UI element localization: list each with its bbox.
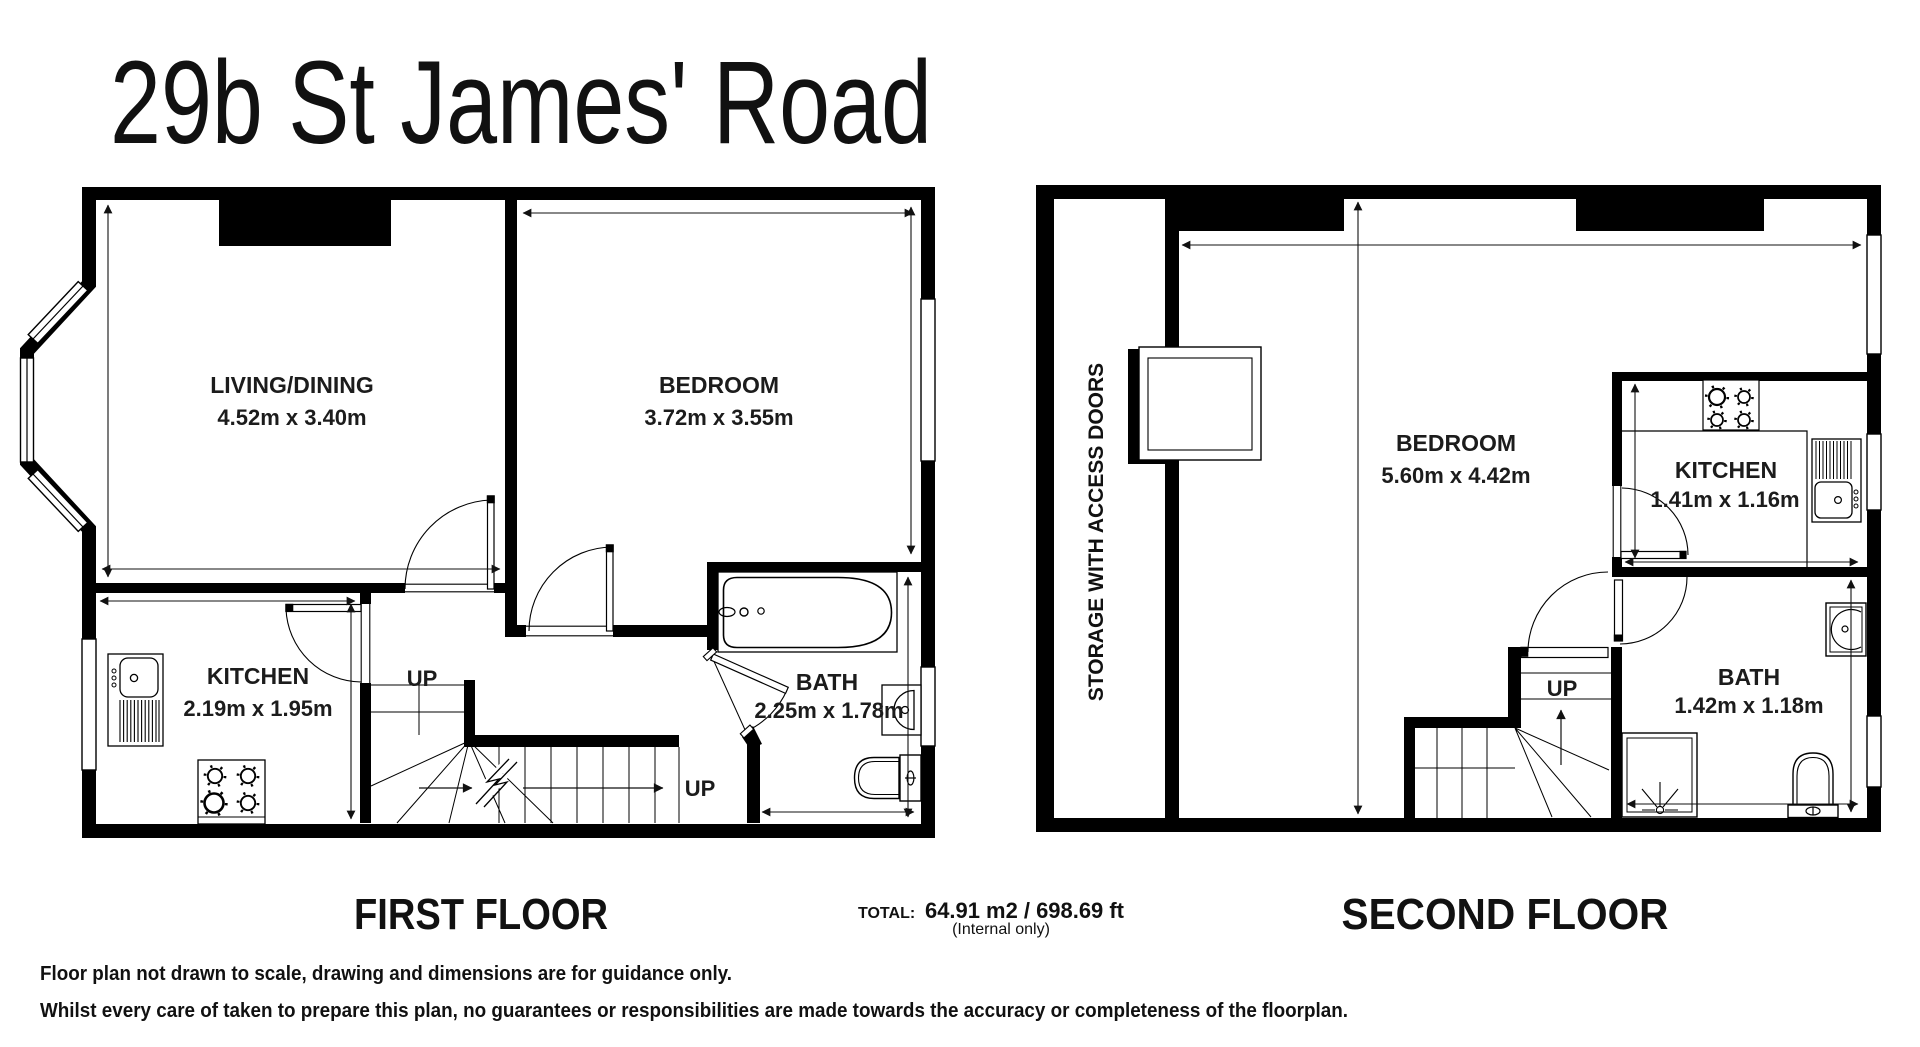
svg-text:64.91 m2 / 698.69 ft: 64.91 m2 / 698.69 ft [925, 898, 1125, 923]
svg-text:KITCHEN: KITCHEN [1675, 457, 1777, 483]
svg-text:5.60m x 4.42m: 5.60m x 4.42m [1381, 463, 1530, 488]
svg-text:Floor plan not drawn to scale,: Floor plan not drawn to scale, drawing a… [40, 963, 732, 985]
svg-text:UP: UP [1547, 676, 1578, 701]
svg-text:2.19m x 1.95m: 2.19m x 1.95m [183, 696, 332, 721]
svg-text:(Internal only): (Internal only) [952, 921, 1050, 938]
svg-text:BEDROOM: BEDROOM [659, 372, 779, 398]
svg-text:BATH: BATH [796, 669, 858, 695]
svg-text:LIVING/DINING: LIVING/DINING [210, 372, 374, 398]
svg-text:29b St James' Road: 29b St James' Road [110, 37, 932, 169]
svg-text:1.41m x 1.16m: 1.41m x 1.16m [1650, 487, 1799, 512]
svg-text:UP: UP [407, 666, 438, 691]
svg-text:TOTAL:: TOTAL: [858, 905, 915, 922]
svg-text:BEDROOM: BEDROOM [1396, 430, 1516, 456]
svg-text:UP: UP [685, 776, 716, 801]
svg-text:BATH: BATH [1718, 664, 1780, 690]
svg-text:STORAGE WITH ACCESS DOORS: STORAGE WITH ACCESS DOORS [1085, 363, 1108, 701]
svg-text:Whilst every care of taken to: Whilst every care of taken to prepare th… [40, 1000, 1348, 1022]
svg-text:FIRST FLOOR: FIRST FLOOR [354, 890, 608, 939]
svg-text:3.72m x 3.55m: 3.72m x 3.55m [644, 405, 793, 430]
svg-text:4.52m x 3.40m: 4.52m x 3.40m [217, 405, 366, 430]
svg-text:SECOND FLOOR: SECOND FLOOR [1342, 890, 1669, 939]
svg-text:1.42m x 1.18m: 1.42m x 1.18m [1674, 693, 1823, 718]
svg-text:2.25m x 1.78m: 2.25m x 1.78m [754, 698, 903, 723]
svg-text:KITCHEN: KITCHEN [207, 663, 309, 689]
